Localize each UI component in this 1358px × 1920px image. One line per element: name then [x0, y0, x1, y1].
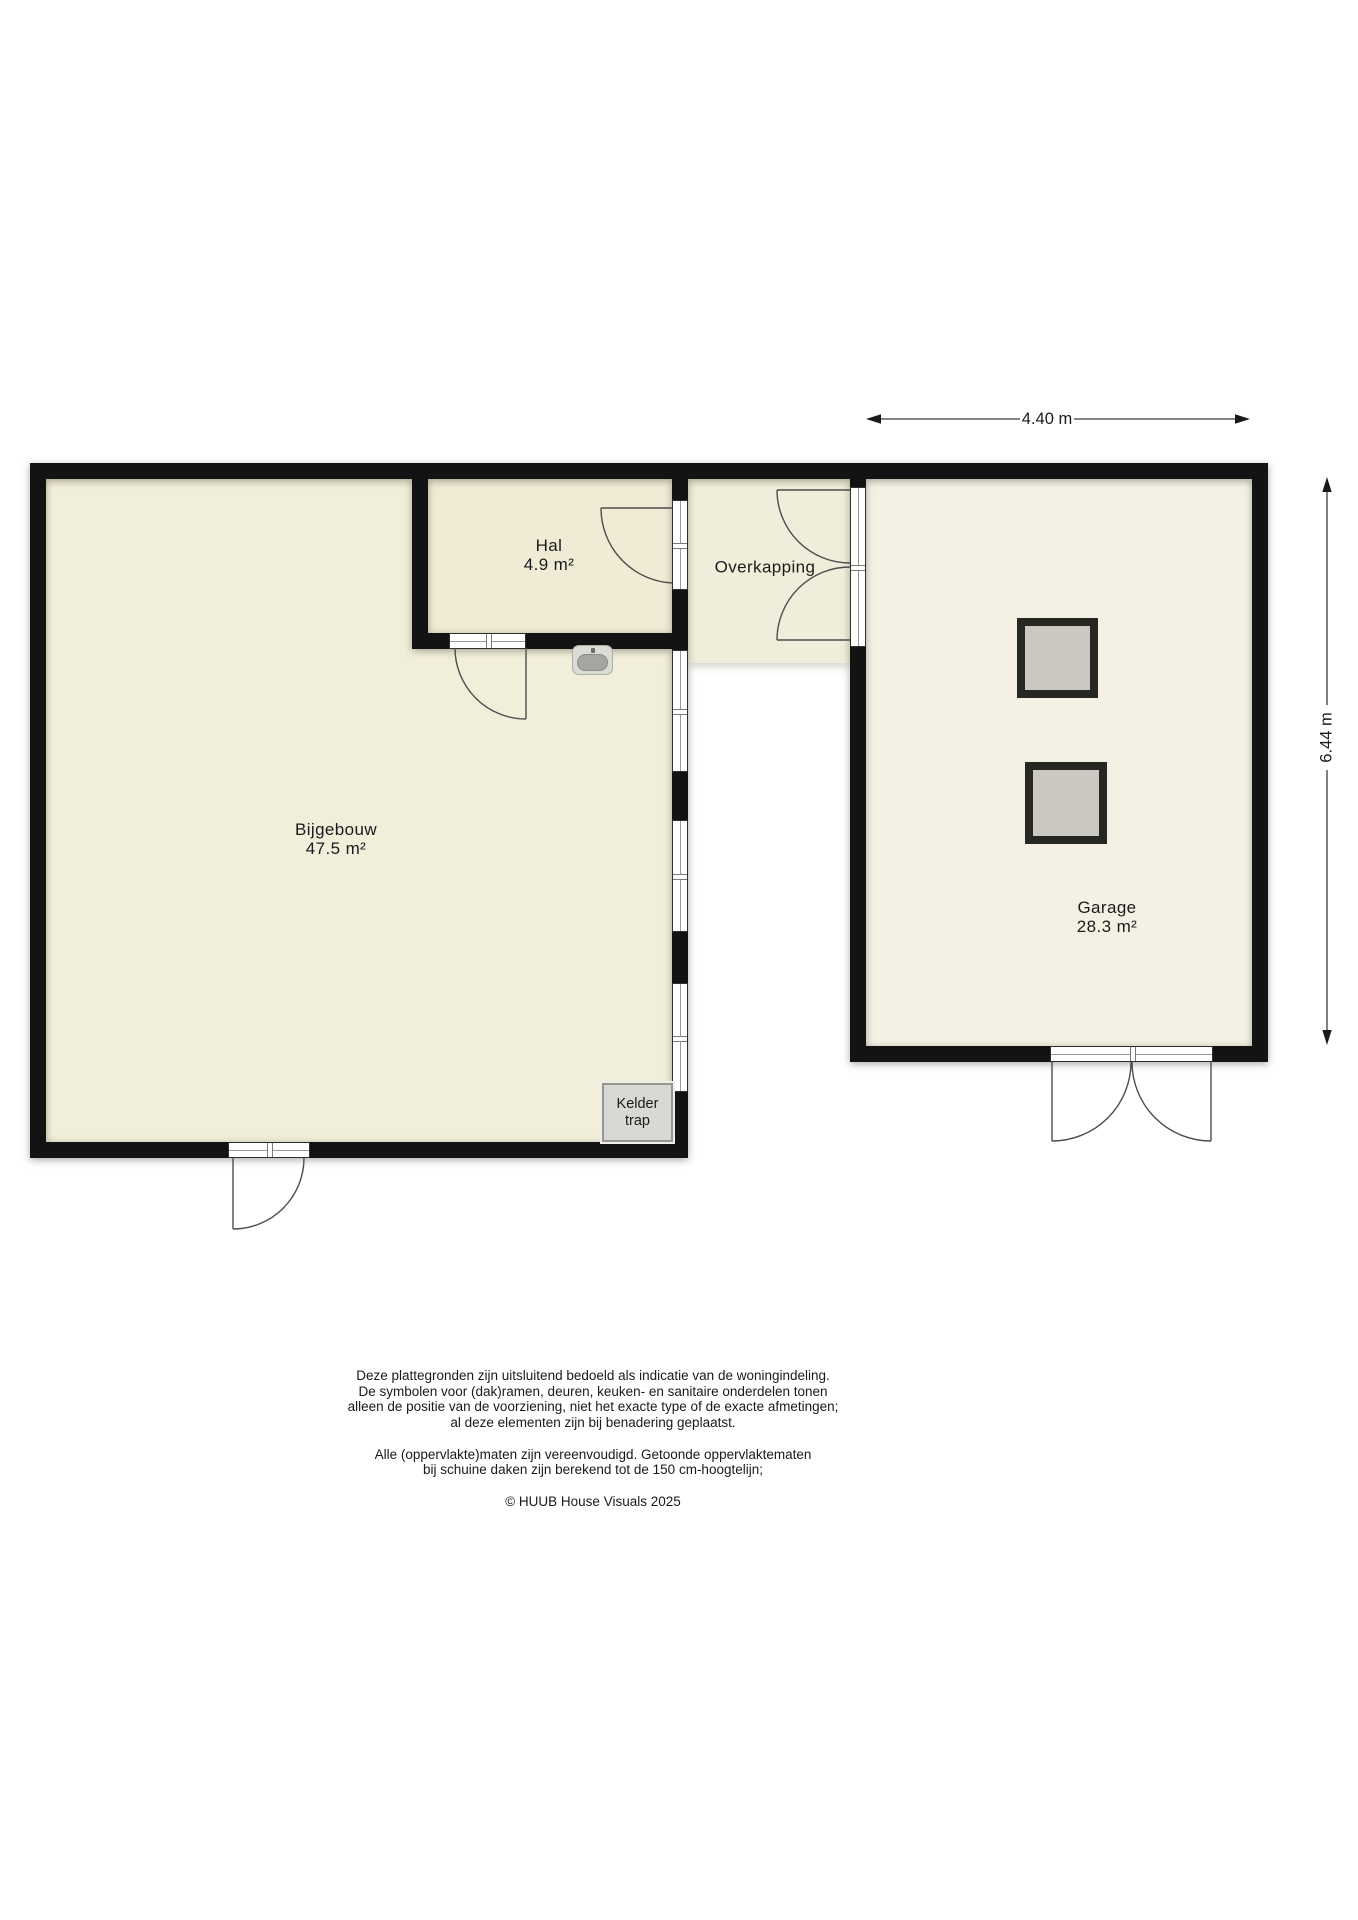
arrowhead-up-icon [1322, 477, 1331, 492]
annotations-layer [0, 0, 1358, 1920]
door-swings [233, 490, 1211, 1229]
bijgebouw-exterior-door-swing [233, 1158, 304, 1229]
garage-door-swing-left [1052, 1062, 1131, 1141]
copyright-line: © HUUB House Visuals 2025 [193, 1494, 993, 1510]
room-name-bijgebouw: Bijgebouw [295, 820, 377, 839]
room-label-hal: Hal 4.9 m² [524, 536, 575, 574]
hal-door-swing [601, 508, 672, 583]
disclaimer-line: alleen de positie van de voorziening, ni… [193, 1399, 993, 1415]
disclaimer-line: Deze plattegronden zijn uitsluitend bedo… [193, 1368, 993, 1384]
disclaimer-line: al deze elementen zijn bij benadering ge… [193, 1415, 993, 1431]
dimension-arrows [866, 414, 1332, 1045]
arrowhead-right-icon [1235, 414, 1250, 423]
garage-door-swing-right [1132, 1062, 1211, 1141]
dimension-width-label: 4.40 m [997, 410, 1097, 429]
dimension-height-label: 6.44 m [1318, 698, 1337, 778]
room-area-bijgebouw: 47.5 m² [295, 839, 377, 858]
room-label-overkapping: Overkapping [715, 558, 816, 577]
hal-bottom-door-swing [455, 648, 526, 719]
room-name-garage: Garage [1077, 898, 1137, 917]
room-area-garage: 28.3 m² [1077, 917, 1137, 936]
room-name-hal: Hal [524, 536, 575, 555]
room-label-garage: Garage 28.3 m² [1077, 898, 1137, 936]
room-area-hal: 4.9 m² [524, 555, 575, 574]
arrowhead-left-icon [866, 414, 881, 423]
arrowhead-down-icon [1322, 1030, 1331, 1045]
floorplan-page: Kelder trap 4.40 m 6.44 m Hal 4.9 m² Ov [0, 0, 1358, 1920]
room-name-overkapping: Overkapping [715, 558, 816, 577]
room-label-bijgebouw: Bijgebouw 47.5 m² [295, 820, 377, 858]
overkapping-door-swing-bottom [777, 567, 850, 640]
disclaimer-line: bij schuine daken zijn berekend tot de 1… [193, 1462, 993, 1478]
overkapping-door-swing-top [777, 490, 850, 563]
disclaimer-line: De symbolen voor (dak)ramen, deuren, keu… [193, 1384, 993, 1400]
disclaimer-line: Alle (oppervlakte)maten zijn vereenvoudi… [193, 1447, 993, 1463]
disclaimer-text: Deze plattegronden zijn uitsluitend bedo… [193, 1368, 993, 1509]
